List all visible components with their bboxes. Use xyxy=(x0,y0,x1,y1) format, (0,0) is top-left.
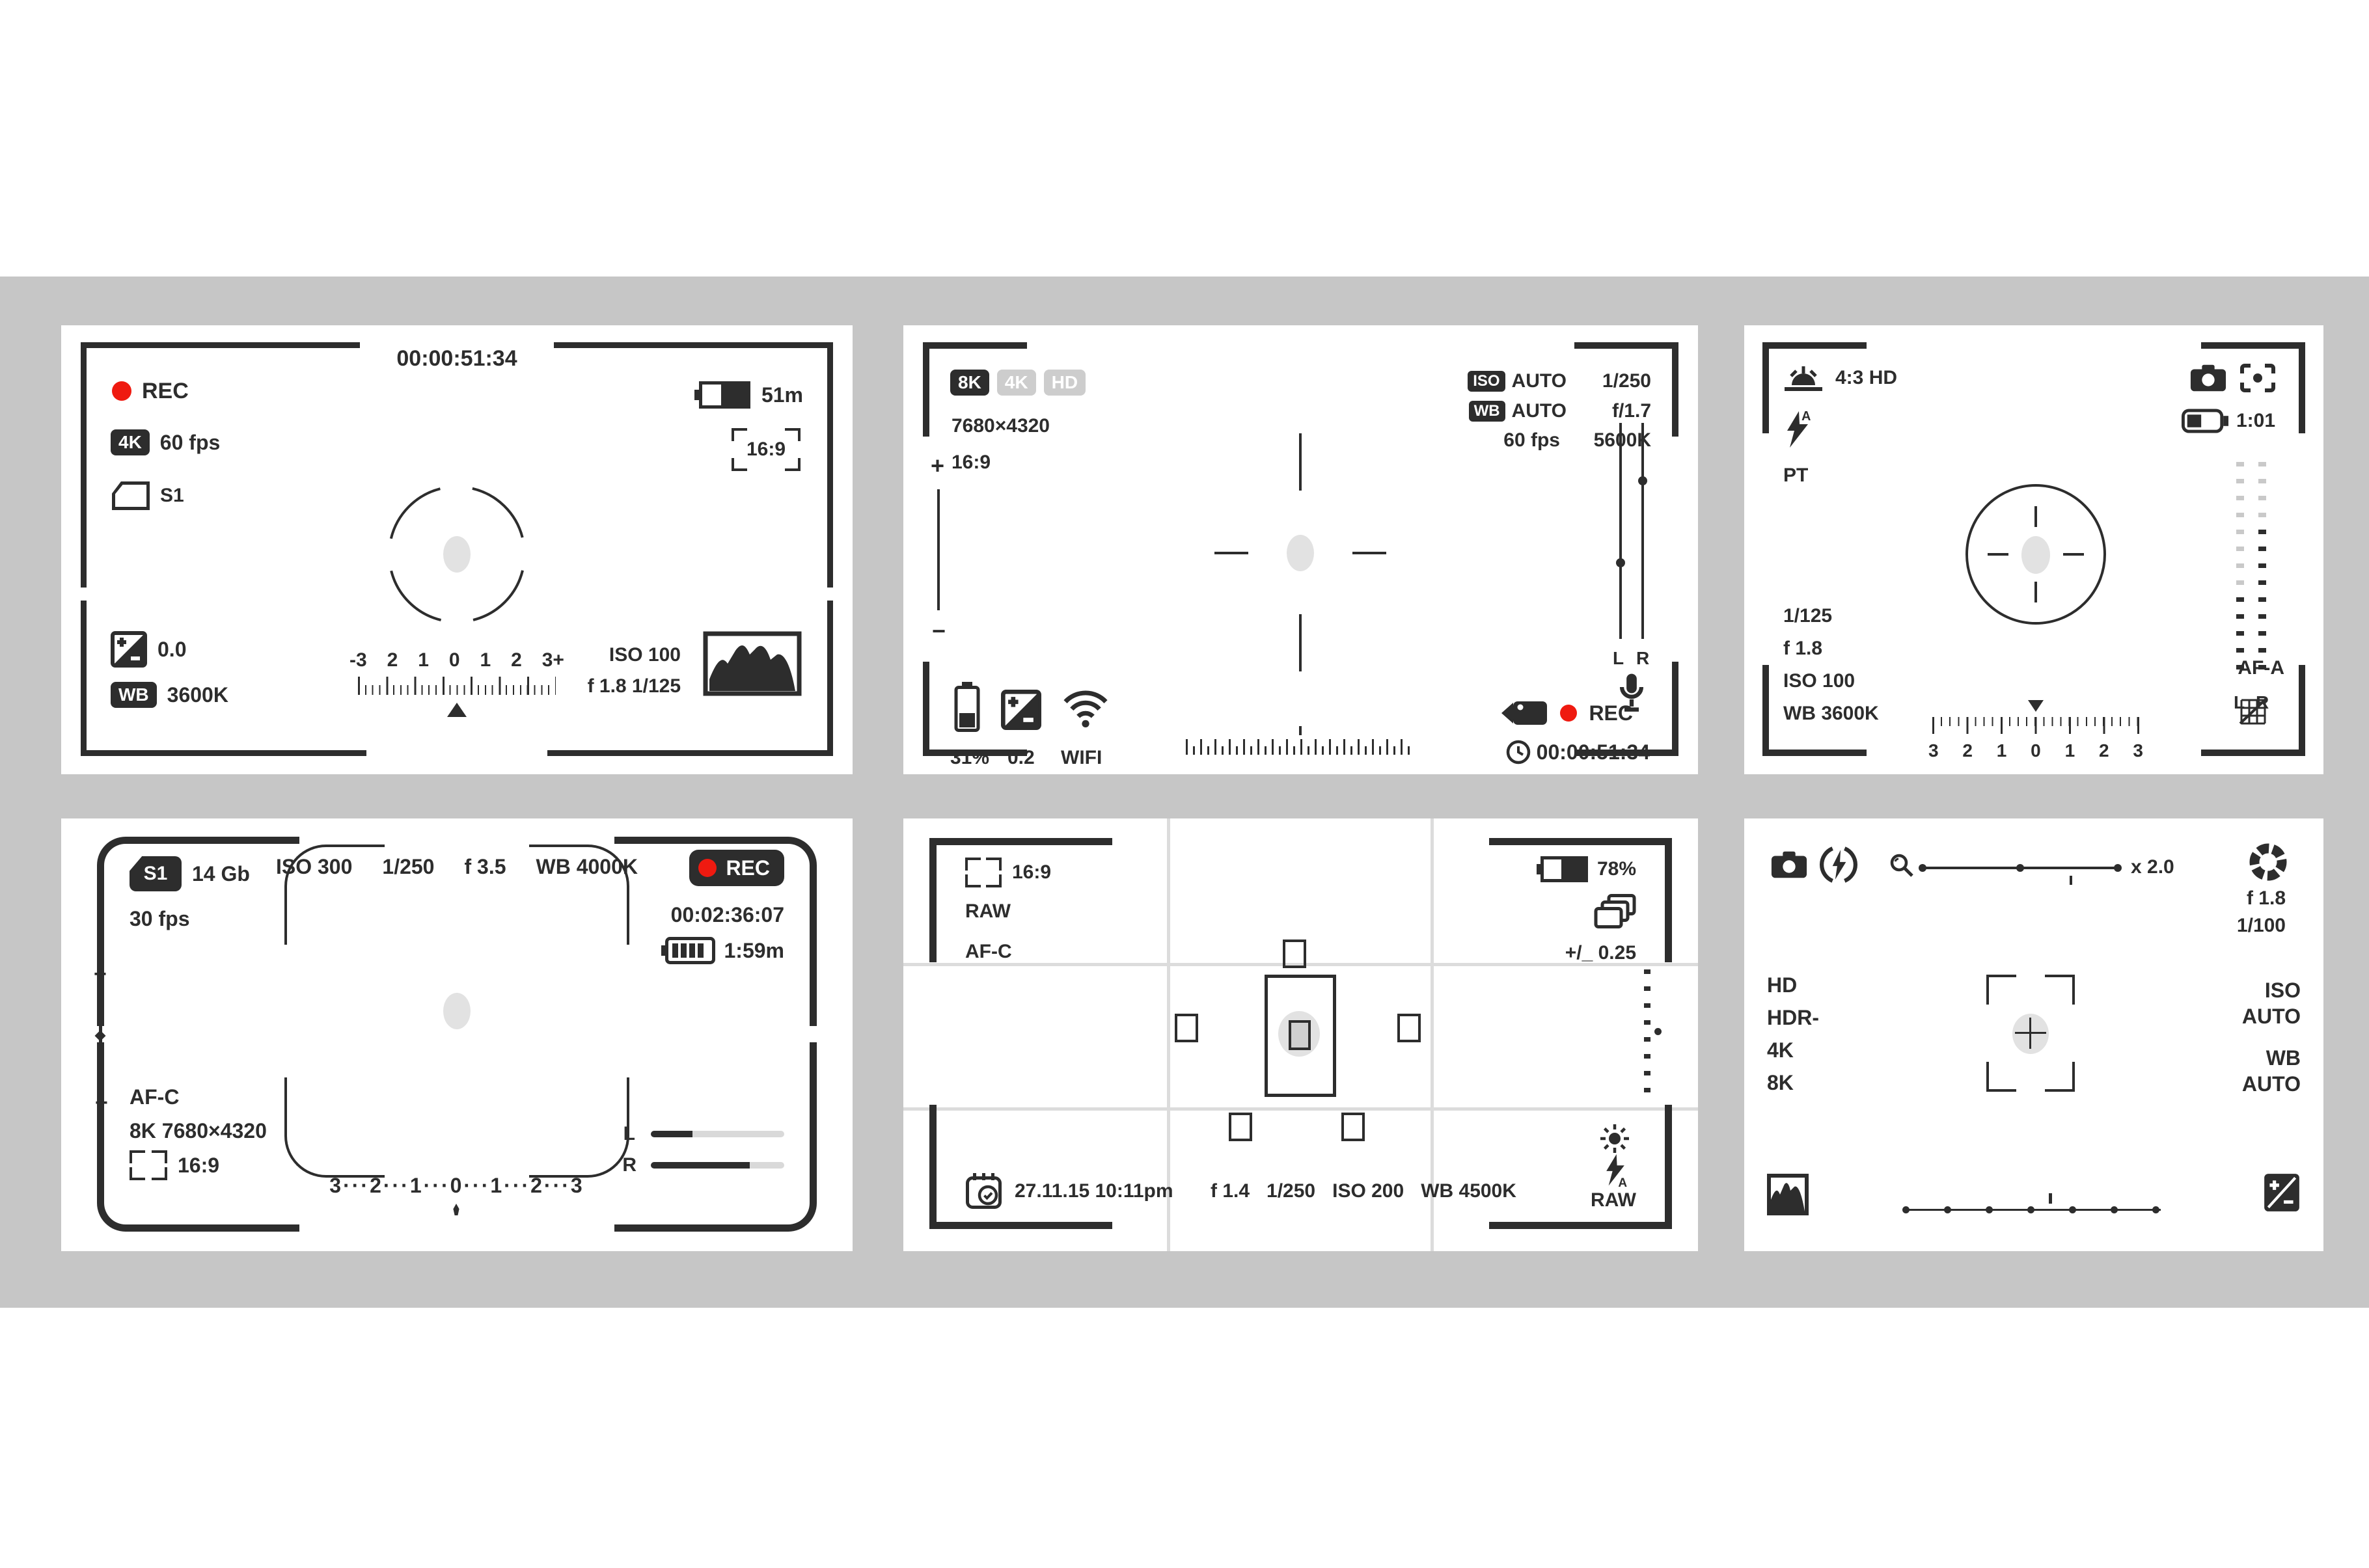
hd-badge: HD xyxy=(1044,370,1086,396)
wb-label: WB 4500K xyxy=(1421,1182,1516,1201)
af-mode-label[interactable]: AF-C xyxy=(965,942,1012,962)
focus-point[interactable] xyxy=(1397,1014,1421,1042)
viewfinder-panel-6: x 2.0 f 1.8 1/100 HD HDR- 4K 8K ISO AUTO… xyxy=(1744,818,2323,1251)
mode-hd[interactable]: HD xyxy=(1767,975,1797,995)
af-mode-label[interactable]: AF-A xyxy=(2238,658,2284,678)
wb-label: WB 3600K xyxy=(1783,704,1879,723)
viewfinder-panel-5: 16:9 RAW AF-C 78% +/_ 0.25 xyxy=(903,818,1698,1251)
mode-4k[interactable]: 4K xyxy=(1767,1040,1794,1061)
clock-icon xyxy=(1505,739,1531,765)
scale-pointer-icon xyxy=(2028,700,2044,712)
battery-indicator: 1:01 xyxy=(2182,409,2275,433)
frame-icon xyxy=(965,858,1002,887)
flash-circle-icon[interactable] xyxy=(1820,846,1857,884)
exposure-label: f 1.8 1/125 xyxy=(588,677,681,696)
battery-time: 1:59m xyxy=(724,940,785,961)
focus-point[interactable] xyxy=(1175,1014,1198,1042)
aspect-label: 16:9 xyxy=(178,1155,219,1176)
format-label-2[interactable]: RAW xyxy=(1591,1191,1636,1210)
zoom-minus-label[interactable]: − xyxy=(932,619,946,643)
iso-label[interactable]: ISO xyxy=(2265,980,2301,1001)
slider-dot xyxy=(1944,1206,1951,1213)
audio-level-left: L xyxy=(623,1124,784,1144)
frame-corner-icon xyxy=(81,342,360,588)
magnifier-icon xyxy=(1889,852,1916,880)
battery-percent: 78% xyxy=(1597,859,1636,879)
audio-meter-handle[interactable] xyxy=(1616,558,1625,567)
histogram-icon[interactable] xyxy=(703,631,802,696)
wifi-label[interactable]: WIFI xyxy=(1061,748,1102,768)
timecode: 00:00:51:34 xyxy=(1537,742,1650,763)
iso-label: ISO 100 xyxy=(609,645,681,665)
crosshair-icon xyxy=(1299,614,1302,671)
meter-left-label: L xyxy=(1613,649,1624,668)
rec-indicator[interactable]: REC xyxy=(689,850,784,886)
rec-indicator[interactable]: REC xyxy=(112,380,189,402)
focus-dot xyxy=(443,993,471,1029)
battery-indicator: 51m xyxy=(694,381,803,409)
viewfinder-panel-3: 4:3 HD A PT 1:01 xyxy=(1744,325,2323,774)
aperture-icon[interactable] xyxy=(2249,843,2287,881)
ev-scale-labels: 3210123 xyxy=(1928,740,2143,761)
slider-dot xyxy=(1902,1206,1910,1213)
aspect-indicator[interactable]: 16:9 xyxy=(965,858,1051,887)
slider-dot xyxy=(2114,864,2122,872)
video-camera-icon xyxy=(1500,697,1548,729)
slider-handle[interactable] xyxy=(95,1031,106,1042)
focus-ruler[interactable] xyxy=(1186,739,1415,755)
resolution-indicator[interactable]: 4K 60 fps xyxy=(111,429,220,455)
rec-dot-icon xyxy=(1560,705,1577,722)
rec-label: REC xyxy=(726,858,770,878)
frame-corner-icon xyxy=(81,601,366,756)
focus-dot xyxy=(443,536,471,573)
crosshair-icon xyxy=(2029,1018,2031,1049)
audio-bar-left xyxy=(651,1131,784,1137)
audio-meter-left xyxy=(2236,462,2244,682)
sd-card-icon xyxy=(112,481,150,510)
focus-point-icon[interactable] xyxy=(2240,363,2275,393)
slider-dot xyxy=(1986,1206,1993,1213)
bracketing-label[interactable]: +/_ 0.25 xyxy=(1565,943,1636,963)
iso-value: AUTO xyxy=(1512,372,1567,391)
slider-dot xyxy=(1919,864,1926,872)
meter-right-label: R xyxy=(1636,649,1649,668)
ev-scale-ruler[interactable] xyxy=(1932,717,2139,734)
exposure-comp-icon xyxy=(111,631,147,668)
meter-left-label: L xyxy=(623,1124,635,1144)
slider-dot xyxy=(2027,1206,2034,1213)
slider-handle[interactable] xyxy=(2016,864,2024,872)
timecode-indicator: 00:00:51:34 xyxy=(1505,739,1650,765)
timecode: 00:02:36:07 xyxy=(671,904,784,925)
wb-value: 3600K xyxy=(167,684,228,705)
crosshair-icon xyxy=(1352,552,1386,554)
photo-camera-icon[interactable] xyxy=(2189,363,2227,393)
resolution-label: 8K 7680×4320 xyxy=(130,1120,267,1141)
aspect-label: 16:9 xyxy=(952,453,991,472)
viewfinder-mockup-sheet: 00:00:51:34 REC 4K 60 fps S1 51m 16:9 xyxy=(0,0,2369,1568)
timecode: 00:00:51:34 xyxy=(61,347,853,370)
viewfinder-panel-1: 00:00:51:34 REC 4K 60 fps S1 51m 16:9 xyxy=(61,325,853,774)
ev-dotted-scale[interactable]: 3···2···1···0···1···2···3 xyxy=(61,1175,853,1196)
exposure-meter xyxy=(1644,969,1652,1100)
aperture-label: f 1.4 xyxy=(1211,1182,1250,1201)
exposure-settings: f 1.4 1/250 ISO 200 WB 4500K xyxy=(1211,1182,1516,1201)
battery-time: 51m xyxy=(761,385,803,405)
iso-label: ISO 100 xyxy=(1783,671,1855,691)
slider-dot xyxy=(2152,1206,2159,1213)
focus-point[interactable] xyxy=(1229,1113,1252,1141)
frame-corner-icon xyxy=(929,838,1112,962)
battery-indicator: 1:59m xyxy=(661,937,785,964)
aspect-ratio-indicator[interactable]: 16:9 xyxy=(732,428,801,471)
viewfinder-panel-4: S1 14 Gb 30 fps ISO 300 1/250 f 3.5 WB 4… xyxy=(61,818,853,1251)
zoom-plus-label[interactable]: + xyxy=(94,963,107,985)
ev-scale-ruler[interactable] xyxy=(358,677,556,695)
zoom-minus-label[interactable]: − xyxy=(95,1092,108,1114)
ev-scale-labels: -3210123+ xyxy=(349,649,564,671)
aperture-label: f 1.8 xyxy=(1783,639,1822,658)
svg-text:A: A xyxy=(1618,1176,1627,1188)
zoom-plus-label[interactable]: + xyxy=(931,454,944,478)
focus-point-active[interactable] xyxy=(1289,1020,1311,1050)
fps-value: 60 fps xyxy=(1503,431,1560,450)
iso-badge: ISO xyxy=(1468,371,1505,392)
wb-label[interactable]: WB xyxy=(2266,1048,2301,1068)
wifi-icon[interactable] xyxy=(1060,687,1112,727)
photo-camera-icon[interactable] xyxy=(1770,850,1808,880)
audio-bar-right xyxy=(651,1162,784,1169)
shutter-value: 1/250 xyxy=(1567,372,1651,391)
mode-8k[interactable]: 8K xyxy=(1767,1072,1794,1093)
shutter-label: 1/125 xyxy=(1783,606,1832,626)
burst-icon[interactable] xyxy=(1593,894,1636,930)
battery-time: 1:01 xyxy=(2236,411,2275,431)
ruler-pointer-icon xyxy=(1299,726,1302,735)
mode-hdr[interactable]: HDR- xyxy=(1767,1007,1819,1028)
rec-label: REC xyxy=(1589,703,1633,723)
pt-label: PT xyxy=(1783,466,1808,485)
frame-corner-icon xyxy=(1489,1105,1672,1229)
af-mode-label[interactable]: AF-C xyxy=(130,1087,179,1107)
audio-meter-right xyxy=(2258,462,2266,682)
kelvin-value: 5600K xyxy=(1560,431,1651,450)
rec-indicator[interactable]: REC xyxy=(1500,697,1633,729)
slider-dot xyxy=(2111,1206,2118,1213)
rec-dot-icon xyxy=(112,381,131,401)
wb-value: AUTO xyxy=(2242,1074,2301,1094)
mode-label: 4:3 HD xyxy=(1835,368,1897,388)
sunrise-icon[interactable] xyxy=(1782,363,1825,394)
battery-indicator: 78% xyxy=(1536,856,1636,882)
aspect-label: 16:9 xyxy=(732,439,801,461)
ev-value: 0.0 xyxy=(157,639,186,660)
slider-dot xyxy=(2069,1206,2076,1213)
shutter-label: 1/250 xyxy=(1267,1182,1315,1201)
viewfinder-panel-2: 8K 4K HD 7680×4320 16:9 ISO AUTO 1/250 W… xyxy=(903,325,1698,774)
focus-dot xyxy=(1287,535,1314,571)
battery-icon xyxy=(694,381,751,409)
iso-value: AUTO xyxy=(2242,1006,2301,1027)
grid-off-icon[interactable] xyxy=(2236,694,2270,727)
rec-dot-icon xyxy=(698,859,717,877)
shutter-label: 1/100 xyxy=(2237,916,2286,936)
datetime-label: 27.11.15 10:11pm xyxy=(1015,1182,1173,1201)
audio-level-right: R xyxy=(622,1156,784,1175)
calendar-clock-icon xyxy=(965,1172,1003,1210)
datetime-indicator: 27.11.15 10:11pm xyxy=(965,1172,1173,1210)
wb-value: AUTO xyxy=(1512,401,1567,421)
4k-badge: 4K xyxy=(111,429,150,455)
white-balance-indicator[interactable]: WB 3600K xyxy=(111,682,228,708)
fps-label: 30 fps xyxy=(130,908,189,929)
format-label[interactable]: RAW xyxy=(965,902,1011,921)
wb-badge: WB xyxy=(1469,401,1505,422)
sun-icon[interactable] xyxy=(1598,1122,1632,1156)
8k-badge: 8K xyxy=(950,370,989,396)
crosshair-icon xyxy=(1214,552,1248,554)
meter-right-label: R xyxy=(622,1156,637,1175)
battery-icon xyxy=(953,682,981,733)
quality-badges[interactable]: 8K 4K HD xyxy=(950,370,1086,396)
exposure-comp-icon[interactable] xyxy=(1001,690,1041,730)
battery-icon xyxy=(1536,856,1588,882)
zoom-level: x 2.0 xyxy=(2131,858,2174,877)
slider-tick xyxy=(2070,876,2072,885)
scale-pointer-icon xyxy=(447,703,467,717)
focus-point[interactable] xyxy=(1341,1113,1365,1141)
exposure-settings: ISO AUTO 1/250 WB AUTO f/1.7 60 fps 5600… xyxy=(1468,371,1651,450)
audio-meter-right xyxy=(1641,423,1644,639)
focus-dot xyxy=(2021,536,2050,574)
card-label: S1 xyxy=(160,486,184,506)
exposure-comp-icon[interactable] xyxy=(2263,1172,2301,1213)
aperture-label: f 1.8 xyxy=(2247,889,2286,908)
frame-corner-icon xyxy=(929,1105,1112,1229)
card-indicator[interactable]: S1 xyxy=(112,481,184,510)
scale-pointer-icon xyxy=(452,1204,460,1215)
battery-icon xyxy=(661,937,715,964)
4k-badge: 4K xyxy=(997,370,1036,396)
resolution-label: 7680×4320 xyxy=(952,416,1050,436)
svg-text:A: A xyxy=(1801,410,1811,424)
fps-label: 60 fps xyxy=(160,432,220,453)
battery-icon xyxy=(2182,409,2228,433)
ev-value: 0.2 xyxy=(1007,748,1035,768)
crosshair-icon xyxy=(1299,433,1302,491)
exposure-comp-indicator[interactable]: 0.0 xyxy=(111,631,186,668)
focus-point[interactable] xyxy=(1283,939,1306,968)
histogram-icon[interactable] xyxy=(1767,1174,1809,1215)
zoom-slider[interactable] xyxy=(937,489,940,610)
flash-auto-icon[interactable]: A xyxy=(1783,410,1812,450)
slider-tick xyxy=(2049,1193,2052,1204)
battery-percent: 31% xyxy=(950,748,989,768)
wb-badge: WB xyxy=(111,682,157,708)
aspect-label: 16:9 xyxy=(1012,863,1051,882)
flash-auto-icon[interactable]: A xyxy=(1603,1153,1628,1188)
iso-label: ISO 200 xyxy=(1332,1182,1404,1201)
meter-handle[interactable] xyxy=(1654,1028,1662,1035)
rec-label: REC xyxy=(142,380,189,402)
aperture-value: f/1.7 xyxy=(1567,401,1651,421)
audio-meter-left xyxy=(1619,423,1622,639)
audio-meter-handle[interactable] xyxy=(1638,476,1647,485)
